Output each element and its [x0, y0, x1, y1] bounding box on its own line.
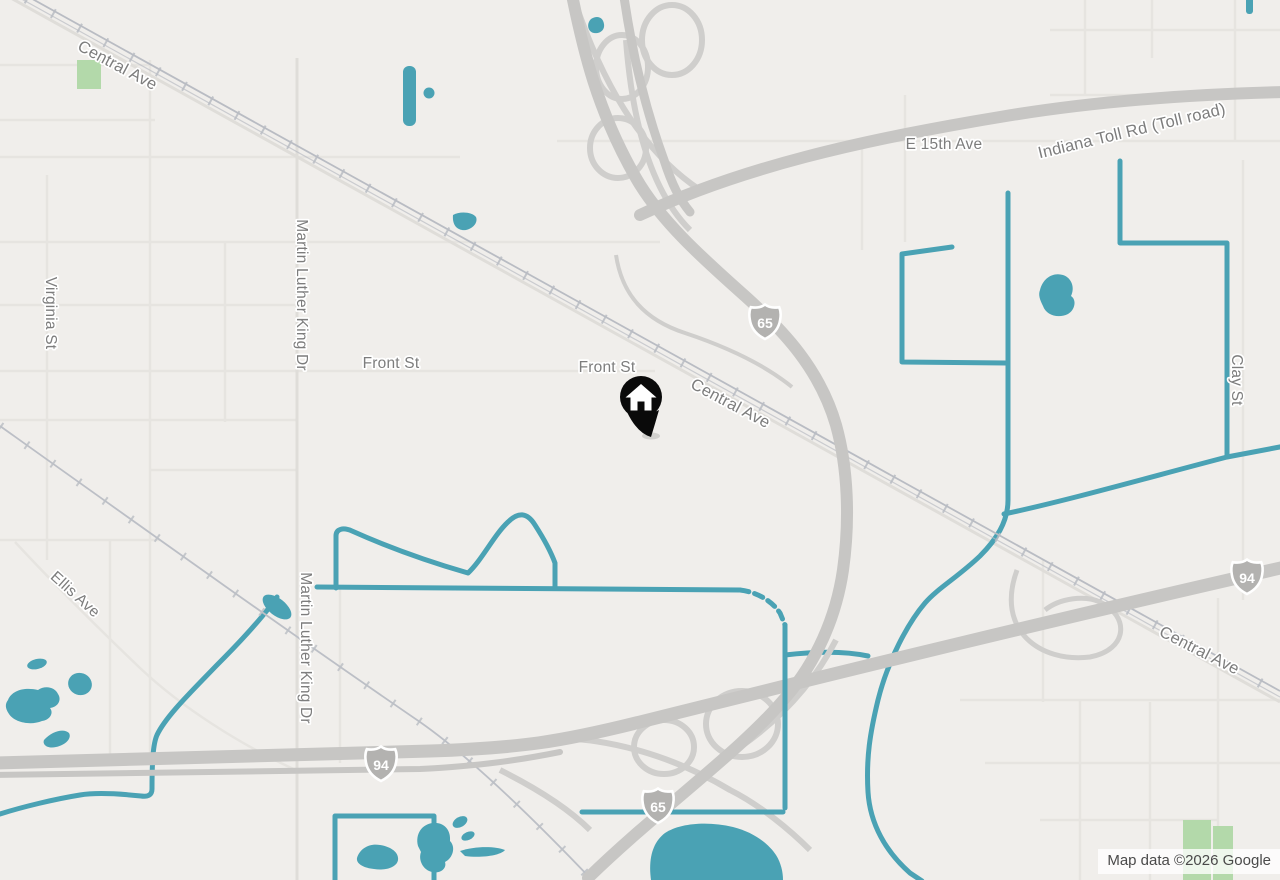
road-label-clay-st: Clay St	[1228, 354, 1245, 406]
pond-bar	[403, 66, 416, 126]
svg-text:65: 65	[650, 799, 666, 815]
map-image: Central Ave Central Ave Central Ave Fron…	[0, 0, 1280, 880]
attribution-text: Map data ©2026 Google	[1107, 852, 1271, 869]
road-label-e-15th-ave: E 15th Ave	[906, 136, 983, 153]
road-label-front-st-1: Front St	[363, 355, 420, 372]
road-label-front-st-2: Front St	[579, 359, 636, 376]
svg-text:94: 94	[373, 757, 389, 773]
road-label-mlk-dr-2: Martin Luther King Dr	[297, 572, 314, 724]
canal-long-horizontal	[317, 587, 740, 590]
map-canvas[interactable]: Central Ave Central Ave Central Ave Fron…	[0, 0, 1280, 880]
map-attribution: Map data ©2026 Google	[1098, 849, 1280, 874]
svg-text:65: 65	[757, 315, 773, 331]
pond-stub-ne	[1246, 0, 1253, 14]
road-label-virginia-st: Virginia St	[42, 277, 59, 350]
road-label-mlk-dr-1: Martin Luther King Dr	[293, 219, 310, 371]
svg-text:94: 94	[1239, 570, 1255, 586]
